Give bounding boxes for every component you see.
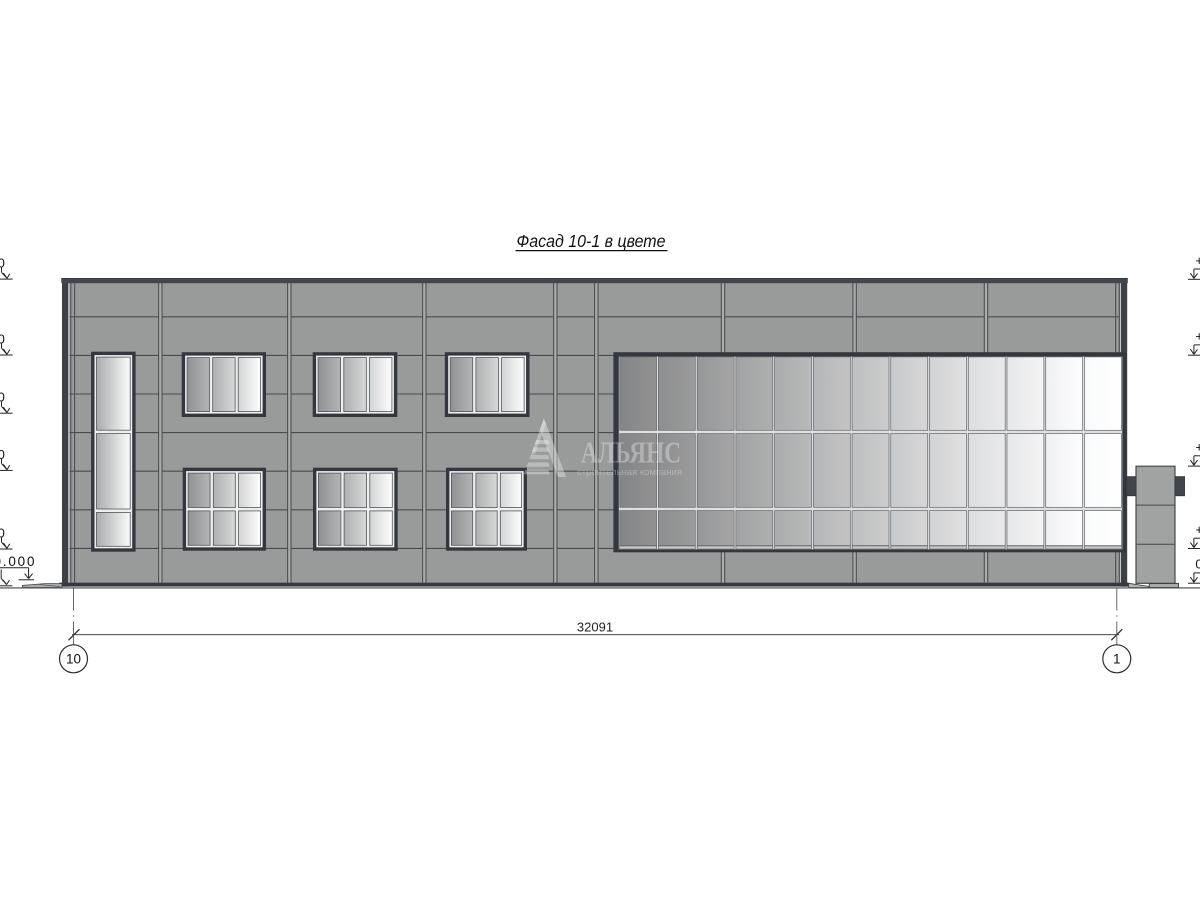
svg-text:0.000: 0.000: [0, 554, 36, 569]
svg-text:+: +: [1195, 522, 1200, 537]
svg-text:1: 1: [1113, 652, 1121, 667]
svg-text:0: 0: [0, 526, 5, 541]
svg-text:0: 0: [1195, 557, 1200, 572]
svg-text:+: +: [1195, 440, 1200, 455]
svg-text:+: +: [1195, 253, 1200, 268]
svg-text:строительная компания: строительная компания: [577, 467, 682, 478]
svg-text:АЛЬЯНС: АЛЬЯНС: [581, 435, 681, 470]
svg-text:0: 0: [0, 256, 5, 271]
svg-text:Фасад 10-1 в цвете: Фасад 10-1 в цвете: [517, 231, 666, 251]
svg-text:0: 0: [0, 390, 5, 405]
svg-text:10: 10: [66, 652, 81, 667]
svg-text:0: 0: [0, 447, 5, 462]
svg-text:0: 0: [0, 332, 5, 347]
svg-text:+: +: [1195, 329, 1200, 344]
svg-text:32091: 32091: [577, 620, 613, 635]
